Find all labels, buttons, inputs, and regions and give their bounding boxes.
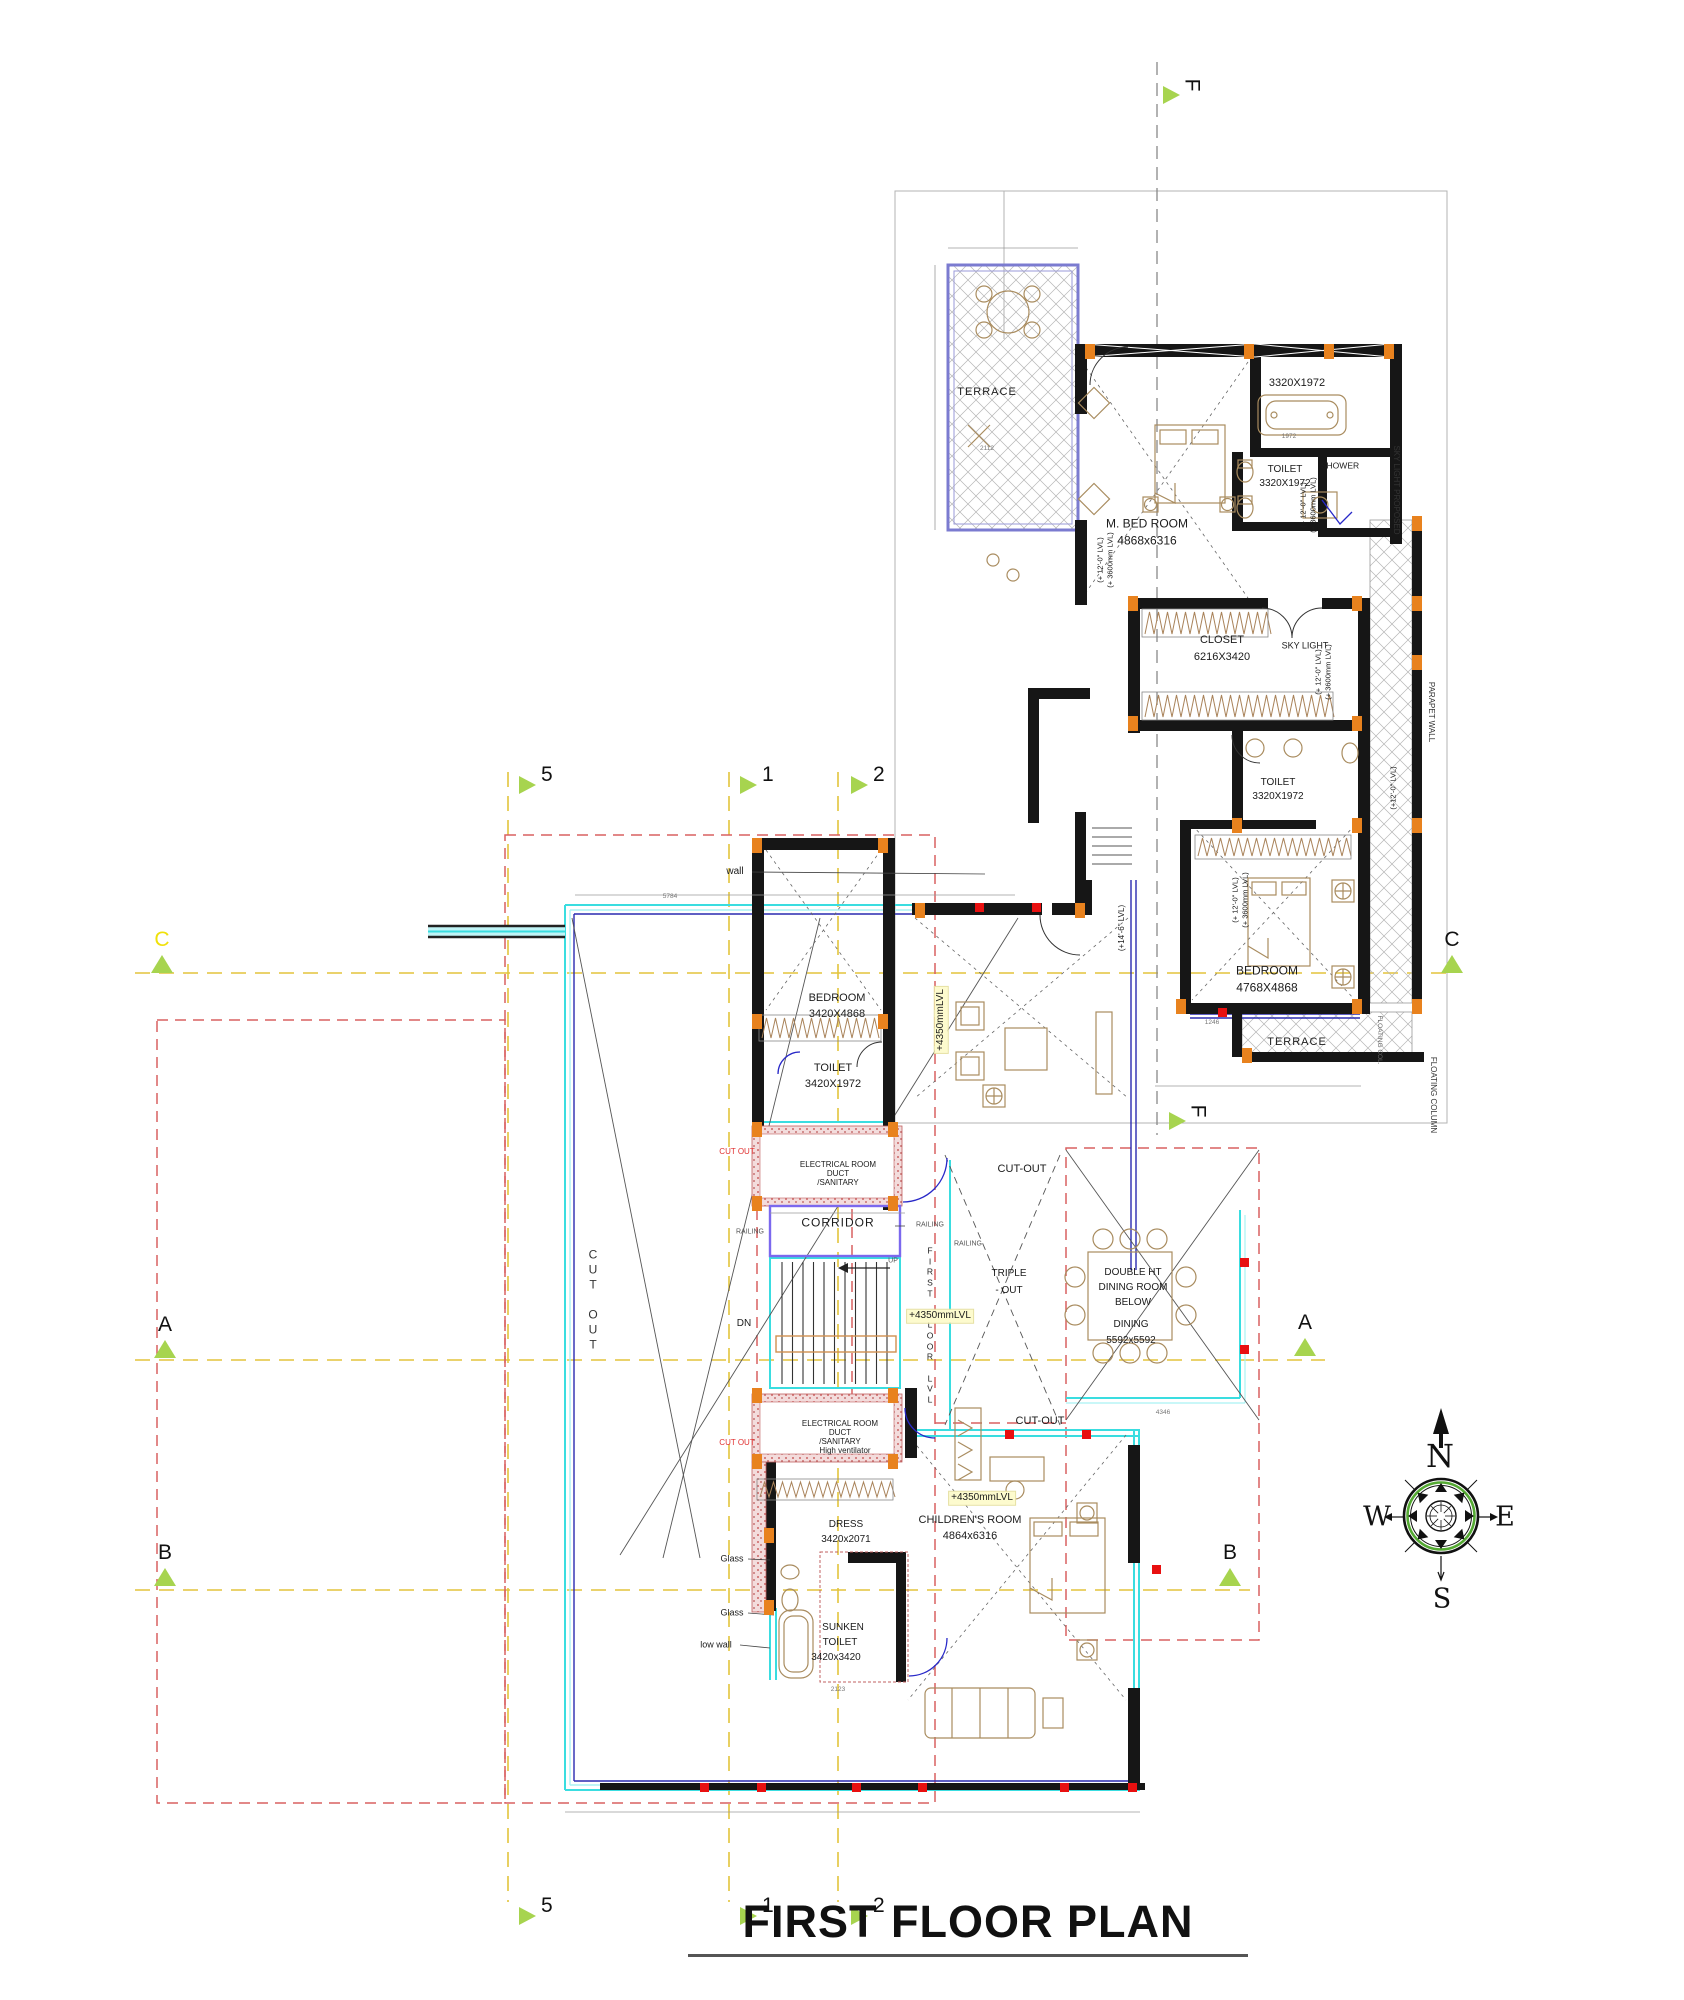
terrace-2-label: TERRACE [1267,1036,1327,1050]
section-marker-triangle-icon [519,1907,536,1925]
section-marker-f: F [1169,1112,1186,1130]
section-marker-triangle-icon [851,776,868,794]
dress-dims: 3420x2071 [821,1534,871,1547]
staircase [782,1262,887,1384]
level-note: (+ 3600mm LVL) [1308,477,1317,533]
dress-label: DRESS [829,1519,863,1532]
floating-column-note: FLOATING COLUMN [1428,1057,1438,1133]
triple-ht-cutout: - OUT [995,1285,1022,1298]
level-note: (+ 3600mm LVL) [1105,532,1114,588]
cut-out-red: CUT OUT [719,1438,754,1448]
dining-label: DINING [1114,1319,1149,1332]
section-marker-label: 5 [541,763,553,787]
section-marker-triangle-icon [740,776,757,794]
closet-dims: 6216X3420 [1194,651,1250,665]
dining-label: DINING ROOM [1099,1282,1168,1295]
section-marker-label: B [158,1541,172,1565]
section-marker-label: 5 [541,1894,553,1918]
section-marker-triangle-icon [154,1568,176,1586]
triple-ht-cutout: TRIPLE [991,1268,1026,1281]
master-bedroom-dims: 4868x6316 [1117,534,1176,549]
level-note: (+ 12'-0" LVL) [1095,537,1104,582]
compass-west-label: W [1363,1502,1391,1533]
section-marker-5: 5 [519,1907,536,1925]
toilet-2-label: TOILET [1261,777,1296,790]
dim-text: 5784 [663,893,677,901]
floating-col-note: FLOATING COL. [1375,1016,1383,1065]
drawing-title: FIRST FLOOR PLAN [688,1896,1248,1957]
bedroom-upper-dims: 4768X4868 [1236,981,1297,996]
cut-out-label: CUT-OUT [998,1163,1047,1177]
dim-text: 1246 [1205,1019,1219,1027]
section-marker-triangle-icon [151,955,173,973]
toilet-2-dims: 3320X1972 [1252,791,1303,804]
level-highlight: +4350mmLVL [949,1492,1015,1505]
compass-east-label: E [1495,1502,1515,1533]
electrical-room-1: /SANITARY [817,1178,859,1188]
section-marker-triangle-icon [154,1340,176,1358]
cut-out-vertical: C U T O U T [588,1248,597,1353]
left-wall-bar [428,926,565,937]
terrace-1-label: TERRACE [957,386,1017,400]
section-marker-c: C [151,955,173,973]
section-marker-2: 2 [851,776,868,794]
toilet-3-dims: 3420X1972 [805,1078,861,1092]
section-marker-label: 2 [873,763,885,787]
dim-text: 1972 [1282,433,1296,441]
section-marker-triangle-icon [1441,955,1463,973]
sunken-toilet-label: TOILET [823,1637,858,1650]
childrens-room-dims: 4864x6316 [943,1530,997,1544]
navy-inner-line [574,348,1360,1781]
section-marker-label: A [1298,1311,1312,1335]
dining-label: DOUBLE HT [1104,1267,1161,1280]
corridor-outline [770,1206,900,1256]
toilet-1-label: TOILET [1268,464,1303,477]
level-note: (+12'-0" LVL) [1388,766,1397,809]
dn-label: DN [737,1318,751,1331]
shower-label: SHOWER [1321,461,1359,472]
section-marker-label: C [1444,928,1459,952]
parapet-wall-note: PARAPET WALL [1426,682,1436,742]
section-marker-triangle-icon [519,776,536,794]
section-marker-1: 1 [740,776,757,794]
section-marker-triangle-icon [1294,1338,1316,1356]
master-bedroom-label: M. BED ROOM [1106,517,1188,532]
toilet-3-label: TOILET [814,1062,852,1076]
bedroom-2-dims: 3420X4868 [809,1008,865,1022]
section-marker-5: 5 [519,776,536,794]
section-marker-label: F [1185,1105,1209,1118]
railing-label: RAILING [954,1241,982,1250]
compass-rose [1384,1408,1498,1580]
section-marker-b: B [154,1568,176,1586]
sunken-toilet-label: SUNKEN [822,1622,864,1635]
level-note: (+14'-6" LVL) [1117,905,1127,951]
first-floor-lvl: F I R S T F L O O R L V L [927,1245,934,1404]
section-marker-f: F [1163,86,1180,104]
up-label: UP [888,1258,898,1267]
railing-label: RAILING [736,1229,764,1238]
walls [600,344,1424,1790]
compass-north-label: N [1426,1437,1454,1475]
section-marker-triangle-icon [1219,1568,1241,1586]
floor-plan-canvas: TERRACEM. BED ROOM4868x63163320X1972TOIL… [0,0,1684,2000]
electrical-room-2: High ventilator [819,1446,870,1456]
compass-south-label: S [1433,1584,1452,1615]
level-note: (+ 12'-0" LVL) [1230,877,1239,922]
cut-out-label: CUT-OUT [1016,1415,1065,1429]
sky-light-proposed-note: SKY LIGHT PROPOSED [1391,445,1401,534]
level-highlight: +4350mmLVL [907,1310,973,1323]
bath-dims: 3320X1972 [1269,377,1325,391]
corridor-label: CORRIDOR [801,1216,874,1231]
level-note: (+ 3600mm LVL) [1323,644,1332,700]
section-marker-a: A [1294,1338,1316,1356]
dining-dims: 5592x5592 [1106,1335,1156,1348]
glass-note: Glass [720,1607,743,1618]
section-marker-label: A [158,1313,172,1337]
cutout-diagonals [572,918,1259,1558]
level-note: (+ 12'-0" LVL) [1313,649,1322,694]
section-marker-label: B [1223,1541,1237,1565]
section-marker-triangle-icon [1163,86,1180,104]
section-marker-b: B [1219,1568,1241,1586]
section-marker-label: C [154,928,169,952]
section-marker-triangle-icon [1169,1112,1186,1130]
section-marker-c: C [1441,955,1463,973]
entry-steps [1092,828,1132,864]
dim-text: 4346 [1156,1409,1170,1417]
section-marker-a: A [154,1340,176,1358]
dim-text: 2112 [980,445,994,453]
bedroom-upper-label: BEDROOM [1236,964,1298,979]
sunken-toilet-dims: 3420x3420 [811,1652,861,1665]
level-note: (+ 12'-0" LVL) [1298,482,1307,527]
cut-out-red: CUT OUT [719,1147,754,1157]
bedroom-2-label: BEDROOM [809,992,866,1006]
closet-label: CLOSET [1200,634,1244,648]
glass-note: Glass [720,1553,743,1564]
level-highlight: +4350mmLVL [935,987,948,1053]
wall-note: wall [726,866,743,879]
red-dashed-outlines [157,835,1259,1803]
childrens-room-label: CHILDREN'S ROOM [919,1514,1022,1528]
level-note: (+ 3600mm LVL) [1240,872,1249,928]
section-marker-label: F [1179,79,1203,92]
dim-text: 2123 [831,1686,845,1694]
dining-label: BELOW [1115,1297,1151,1310]
railing-label: RAILING [916,1222,944,1231]
low-wall-note: low wall [700,1639,732,1650]
section-marker-label: 1 [762,763,774,787]
